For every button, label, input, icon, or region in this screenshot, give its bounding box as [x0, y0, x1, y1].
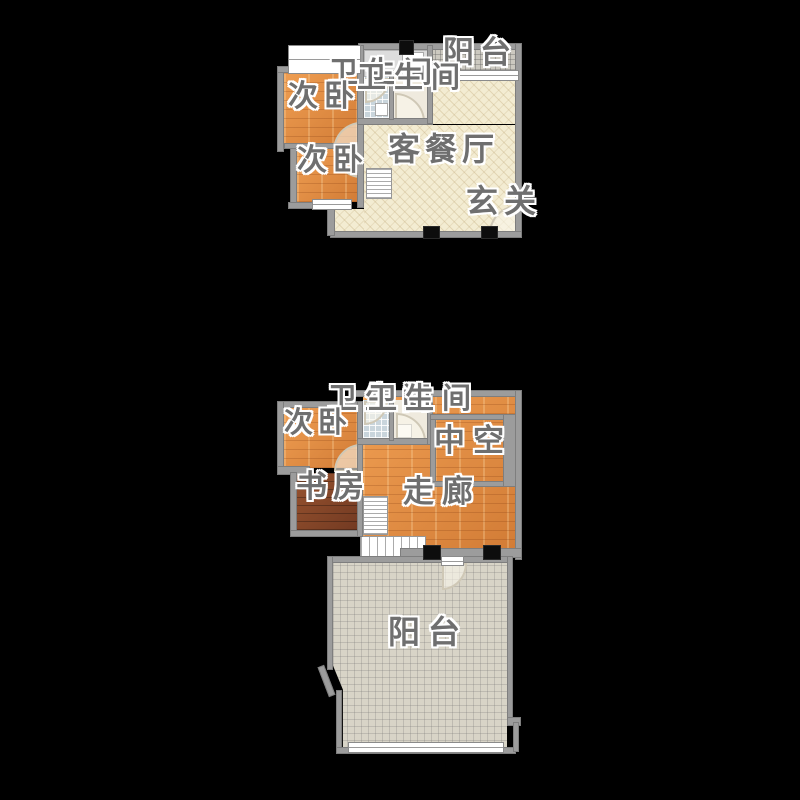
column [423, 545, 441, 560]
wall-segment [513, 722, 519, 752]
wall-segment [290, 530, 363, 537]
room-label-corridor: 走廊 [403, 475, 481, 509]
room-label-balcony: 阳台 [388, 615, 468, 650]
upper-toilet-fixture [375, 103, 388, 116]
wall-segment [277, 401, 284, 475]
upper-living-floor-c [335, 209, 364, 231]
column [399, 40, 414, 55]
column [481, 226, 498, 239]
wall-segment [357, 438, 433, 445]
room-label-bedroom-bottom: 次卧 [297, 144, 369, 177]
column [423, 226, 440, 239]
wall-segment [507, 556, 513, 722]
room-label-bathroom-b: 卫生间 [357, 62, 468, 94]
upper-staircase [366, 168, 392, 199]
room-label-bathroom-b: 卫生间 [368, 383, 479, 415]
wall-segment [357, 118, 433, 125]
upper-bedroom-window [312, 199, 352, 210]
room-label-bedroom-top: 次卧 [288, 80, 360, 113]
lower-balcony-floor [333, 562, 507, 748]
room-label-void: 中空 [434, 424, 512, 458]
wall-segment [277, 66, 284, 152]
lower-balcony-window [348, 742, 504, 753]
column [483, 545, 501, 560]
wall-segment [515, 390, 522, 560]
lower-balcony-door-opening [441, 556, 464, 566]
room-label-study: 书房 [296, 470, 370, 504]
room-label-living-dining: 客餐厅 [388, 132, 499, 167]
room-label-bedroom: 次卧 [284, 407, 352, 439]
wall-segment [290, 148, 297, 209]
wall-segment [327, 556, 333, 670]
floor-plan-canvas: 阳台 卫生间 卫生间 次卧 次卧 客餐厅 玄关 [0, 0, 800, 800]
wall-segment [336, 690, 342, 752]
room-label-entry: 玄关 [466, 184, 542, 219]
